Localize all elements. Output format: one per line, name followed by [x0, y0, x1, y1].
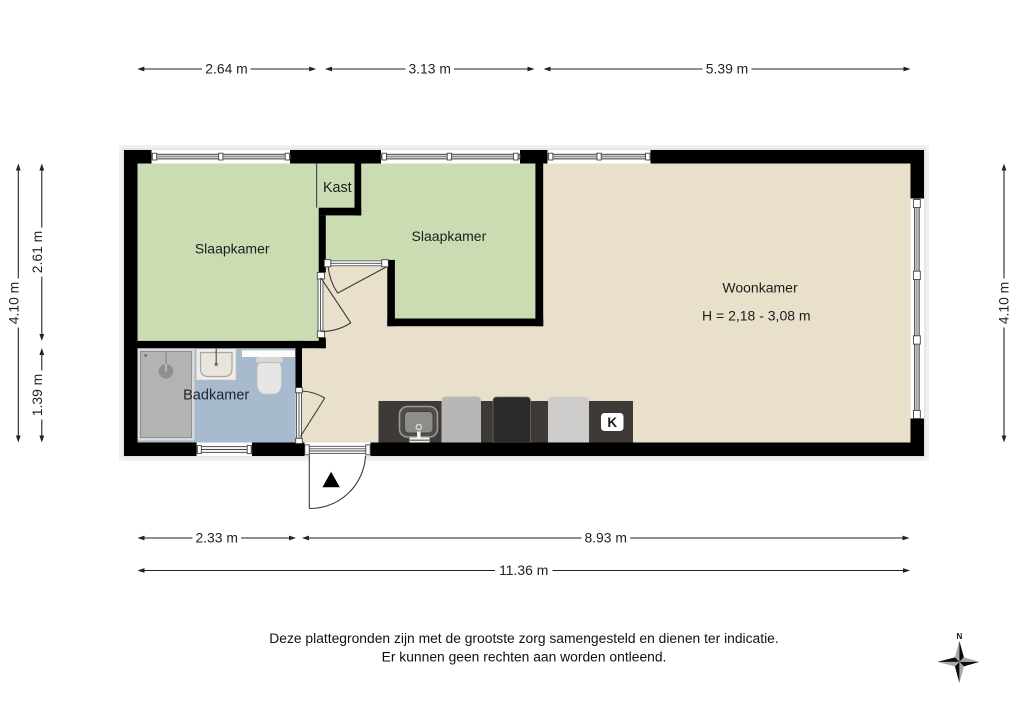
svg-text:2.33 m: 2.33 m [195, 530, 237, 546]
svg-text:2.64 m: 2.64 m [205, 61, 247, 77]
svg-text:4.10 m: 4.10 m [996, 282, 1012, 324]
svg-text:5.39 m: 5.39 m [706, 61, 748, 77]
svg-text:11.36 m: 11.36 m [499, 562, 548, 578]
svg-text:Deze plattegronden zijn met de: Deze plattegronden zijn met de grootste … [269, 630, 778, 646]
svg-text:Woonkamer: Woonkamer [722, 280, 798, 296]
svg-text:2.61 m: 2.61 m [29, 231, 45, 273]
svg-text:8.93 m: 8.93 m [584, 530, 626, 546]
svg-text:Er kunnen geen rechten aan wor: Er kunnen geen rechten aan worden ontlee… [382, 649, 667, 665]
svg-text:K: K [607, 415, 617, 430]
svg-text:3.13 m: 3.13 m [408, 61, 450, 77]
svg-text:Slaapkamer: Slaapkamer [195, 240, 270, 256]
svg-text:H = 2,18 - 3,08 m: H = 2,18 - 3,08 m [702, 308, 811, 324]
svg-text:4.10 m: 4.10 m [5, 282, 21, 324]
svg-text:Badkamer: Badkamer [183, 387, 249, 403]
svg-text:Slaapkamer: Slaapkamer [412, 228, 487, 244]
svg-text:1.39 m: 1.39 m [29, 374, 45, 416]
svg-text:N: N [957, 632, 963, 641]
svg-text:Kast: Kast [323, 180, 352, 196]
